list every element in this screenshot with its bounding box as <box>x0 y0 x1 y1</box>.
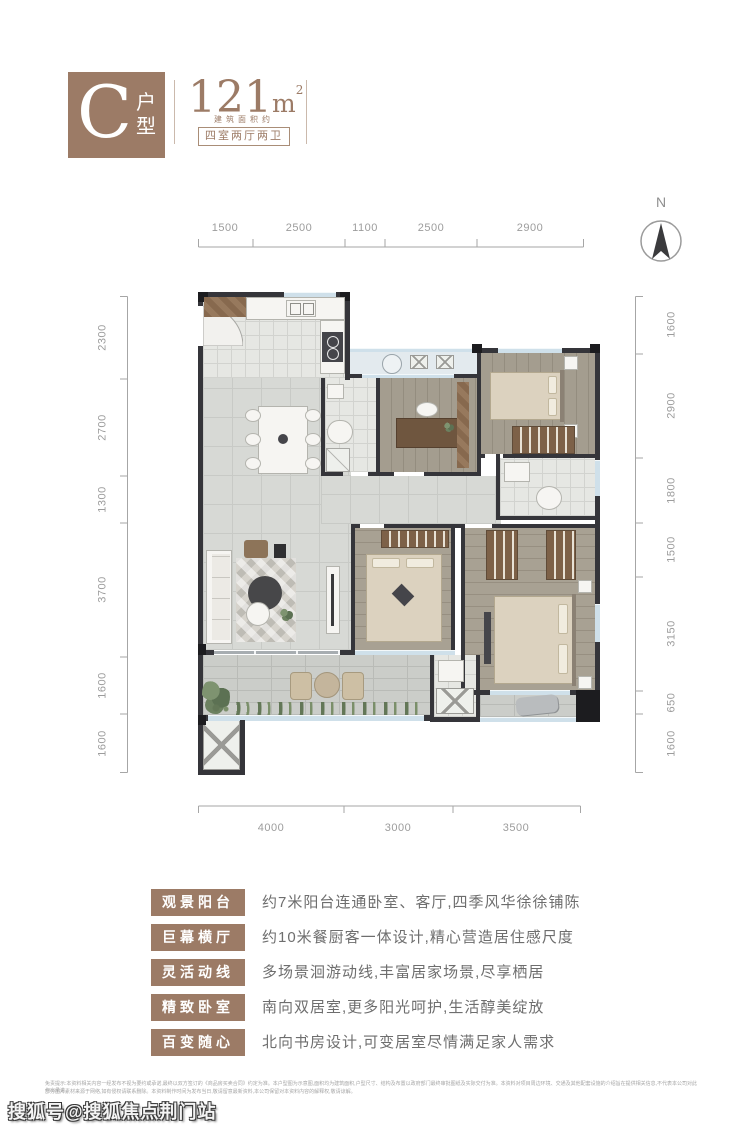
dim-top-3: 1100 <box>335 222 395 235</box>
dim-top-4: 2500 <box>401 222 461 235</box>
side-table <box>274 544 286 558</box>
table-centerpiece <box>278 434 288 444</box>
feature-desc-1: 约7米阳台连通卧室、客厅,四季风华徐徐铺陈 <box>262 889 702 916</box>
dim-bottom-2: 3000 <box>368 822 428 835</box>
wall <box>240 720 245 775</box>
wall <box>384 524 461 528</box>
compass-north-label: N <box>646 194 676 210</box>
wall <box>368 472 394 476</box>
utility-sink <box>438 660 464 682</box>
pillow <box>548 398 557 416</box>
dim-left-6: 1600 <box>97 714 110 774</box>
bay-planter <box>382 354 402 374</box>
feature-desc-5: 北向书房设计,可变居室尽情满足家人需求 <box>262 1029 702 1056</box>
area-sup: 2 <box>296 83 304 97</box>
stove-burner <box>327 336 339 348</box>
plan-word: 户 型 <box>136 91 156 139</box>
bathroom-east-sink <box>504 462 530 482</box>
sink-basin <box>303 303 314 315</box>
dining-chair <box>245 409 261 422</box>
flower-row <box>208 702 424 715</box>
layout-badge: 四室两厅两卫 <box>198 127 290 146</box>
floor-plan <box>198 292 600 775</box>
floorplan-poster: C 户 型 121m2 建筑面积约 四室两厅两卫 N 1500 2500 110… <box>0 0 740 1135</box>
dim-bottom-3: 3500 <box>486 822 546 835</box>
headboard <box>560 370 564 422</box>
nightstand <box>578 676 592 689</box>
pillow <box>558 604 568 634</box>
entry-cabinet <box>204 297 246 317</box>
wall <box>198 770 245 775</box>
desk-plant <box>444 422 454 432</box>
dim-top-2: 2500 <box>269 222 329 235</box>
pillow <box>548 376 557 394</box>
dim-left-5: 1600 <box>97 656 110 716</box>
dim-right-2: 2900 <box>666 376 679 436</box>
wardrobe-master <box>546 530 576 580</box>
watermark: 搜狐号@搜狐焦点荆门站 <box>8 1098 217 1124</box>
corner-column <box>198 644 206 655</box>
wall <box>496 516 600 520</box>
shower-tray <box>326 448 350 472</box>
dim-top-1: 1500 <box>195 222 255 235</box>
bay-flowerbox <box>436 355 454 369</box>
wall <box>481 454 485 458</box>
wardrobe-north <box>512 426 575 454</box>
wall <box>321 472 343 476</box>
master-balcony-door <box>490 690 570 695</box>
toilet <box>327 420 353 444</box>
wall <box>350 374 362 378</box>
corner-column <box>472 344 482 353</box>
wall <box>595 348 600 722</box>
balcony-chair <box>290 672 312 700</box>
dim-right-4: 1500 <box>666 520 679 580</box>
wall <box>376 378 380 476</box>
bedroom-master-window <box>595 604 600 642</box>
disclaimer-line-2: 部分图片素材来源于网络,如有侵权请联系删除。本资料制作时间为发布当日,敬请留意最… <box>45 1089 697 1096</box>
header-divider-1 <box>174 80 175 144</box>
bedroom-middle-window <box>355 650 455 655</box>
dining-chair <box>305 457 321 470</box>
plant <box>280 608 293 621</box>
pillow <box>372 558 400 568</box>
wall <box>430 655 434 722</box>
wardrobe-master <box>486 530 518 580</box>
headboard <box>572 594 576 686</box>
dim-left-1: 2300 <box>97 308 110 368</box>
dining-chair <box>245 457 261 470</box>
nightstand <box>564 356 578 370</box>
plan-word-bottom: 型 <box>136 115 156 139</box>
balcony-table <box>314 672 340 698</box>
wall <box>351 524 355 655</box>
desk-chair <box>416 402 438 417</box>
feature-label-3: 灵活动线 <box>151 959 245 986</box>
corner-column <box>198 715 206 725</box>
wall <box>451 524 455 655</box>
area-note: 建筑面积约 <box>193 114 295 125</box>
stove-burner <box>327 348 339 360</box>
feature-desc-3: 多场景洄游动线,丰富居家场景,尽享栖居 <box>262 959 702 986</box>
dim-line-top <box>198 239 584 248</box>
feature-label-4: 精致卧室 <box>151 994 245 1021</box>
balcony-rail-glass <box>203 715 430 721</box>
dim-line-bottom <box>198 805 581 814</box>
wall <box>496 454 500 520</box>
dim-left-2: 2700 <box>97 398 110 458</box>
study-bookshelf <box>457 382 469 468</box>
sofa-cushions <box>212 554 230 640</box>
hallway-area <box>321 476 501 524</box>
plan-word-top: 户 <box>136 91 156 115</box>
plan-letter: C <box>77 76 132 148</box>
feature-label-2: 巨幕横厅 <box>151 924 245 951</box>
header-divider-2 <box>306 80 307 144</box>
dim-bottom-1: 4000 <box>241 822 301 835</box>
nightstand <box>578 580 592 593</box>
washer-area <box>436 688 474 714</box>
dim-line-left <box>120 296 129 773</box>
toilet <box>536 486 562 510</box>
lounge-bench <box>244 540 268 558</box>
dim-right-7: 1600 <box>666 714 679 774</box>
sink-basin <box>290 303 301 315</box>
coffee-table-small <box>246 602 270 626</box>
wall <box>476 655 480 717</box>
bedroom-north-window <box>498 348 562 353</box>
dining-chair <box>245 433 261 446</box>
pillow <box>406 558 434 568</box>
ac-platform <box>203 720 240 770</box>
bay-window <box>350 348 481 352</box>
wall <box>503 454 600 458</box>
bathroom-east-window <box>595 460 600 496</box>
bay-flowerbox <box>410 355 428 369</box>
dim-right-5: 3150 <box>666 604 679 664</box>
balcony-sliding-door <box>214 651 340 654</box>
wall <box>321 378 325 476</box>
pillow <box>558 644 568 674</box>
wall <box>430 717 480 722</box>
dim-left-4: 3700 <box>97 560 110 620</box>
dim-right-1: 1600 <box>666 295 679 355</box>
wall <box>492 524 600 528</box>
balcony-chair <box>342 672 364 700</box>
dim-right-3: 1800 <box>666 461 679 521</box>
plan-type-logo: C 户 型 <box>68 72 165 158</box>
bathroom-sink <box>327 384 344 399</box>
wall <box>345 292 350 380</box>
feature-desc-4: 南向双居室,更多阳光呵护,生活醇美绽放 <box>262 994 702 1021</box>
dim-top-5: 2900 <box>500 222 560 235</box>
wardrobe-middle <box>381 530 449 548</box>
balcony-east-rail <box>480 717 576 722</box>
compass-icon <box>638 215 684 267</box>
dining-chair <box>305 409 321 422</box>
tv-screen <box>331 574 334 626</box>
feature-desc-2: 约10米餐厨客一体设计,精心营造居住感尺度 <box>262 924 702 951</box>
dining-chair <box>305 433 321 446</box>
dim-left-3: 1300 <box>97 470 110 530</box>
feature-label-5: 百变随心 <box>151 1029 245 1056</box>
corner-column <box>590 344 600 353</box>
dim-line-right <box>634 296 643 773</box>
wall <box>424 472 481 476</box>
bed-bench <box>484 612 491 664</box>
feature-label-1: 观景阳台 <box>151 889 245 916</box>
corner-column <box>576 690 600 722</box>
wall <box>340 650 355 655</box>
